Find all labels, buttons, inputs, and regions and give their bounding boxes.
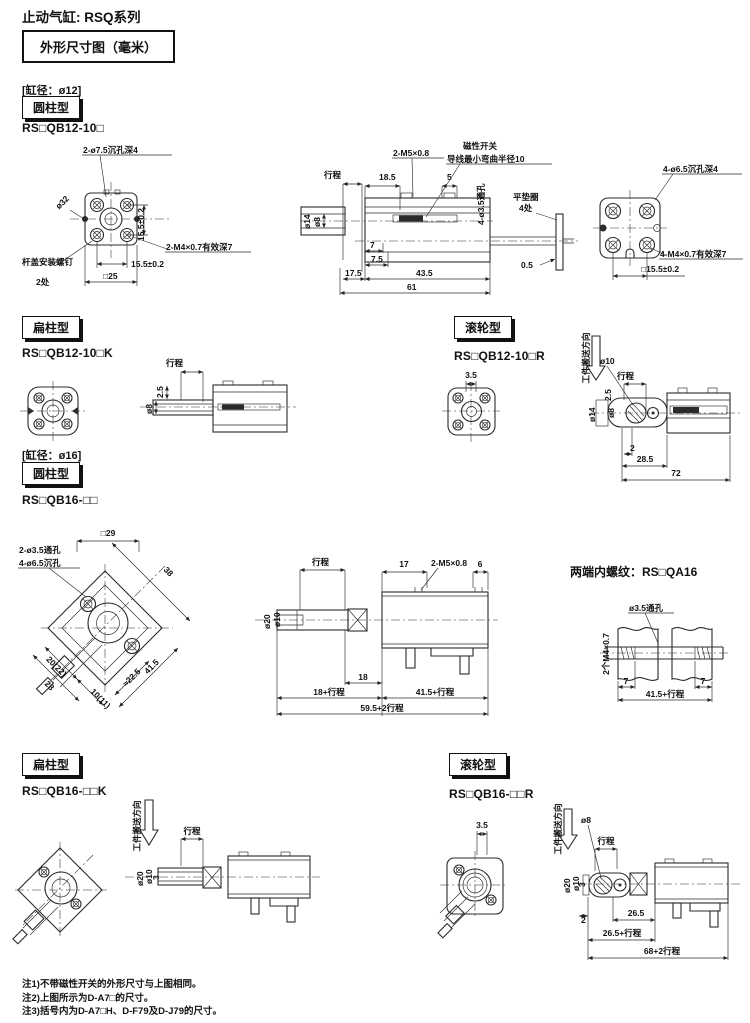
dim-label: 磁性开关 bbox=[463, 141, 498, 151]
dim-label: 2 bbox=[581, 915, 586, 925]
drawing-b12-side-view: 行程 18.5 5 2-M5×0.8 磁性开关 导线最小弯曲半径10 ø14 ø… bbox=[300, 141, 578, 295]
dim-label: 68+2行程 bbox=[644, 946, 681, 956]
workpiece-direction-arrow bbox=[140, 800, 158, 845]
workpiece-direction-label: 工件搬送方向 bbox=[553, 803, 563, 854]
workpiece-direction-label: 工件搬送方向 bbox=[581, 332, 591, 383]
dim-label: ø10 bbox=[600, 356, 615, 366]
dim-label: 2-M4×0.7有效深7 bbox=[166, 242, 233, 252]
dim-label: 行程 bbox=[165, 358, 184, 368]
dim-label: 2.5 bbox=[603, 389, 613, 401]
dim-label: 2-M5×0.8 bbox=[393, 148, 429, 158]
dim-label: 41.5 bbox=[142, 657, 161, 676]
dim-label: 3.5 bbox=[476, 820, 488, 830]
drawing-b16-roller: 3.5 工件搬送方向 ø8 行程 ø20 ø10 3 bbox=[438, 803, 740, 960]
dim-label: 6 bbox=[478, 559, 483, 569]
drawing-b12-end-view: 4-ø6.5沉孔深4 4-M4×0.7有效深7 □15.5±0.2 bbox=[593, 164, 743, 280]
dim-label: □29 bbox=[101, 528, 116, 538]
dim-label: 61 bbox=[407, 282, 417, 292]
dim-label: 17.5 bbox=[345, 268, 362, 278]
dim-label: ø8 bbox=[581, 815, 591, 825]
dim-label: 18.5 bbox=[379, 172, 396, 182]
dim-label: 15.5±0.2 bbox=[131, 259, 164, 269]
dim-label: 行程 bbox=[616, 371, 635, 381]
dim-label: ø20 bbox=[262, 614, 272, 629]
dim-label: 导线最小弯曲半径10 bbox=[447, 154, 525, 164]
dim-label: ø3.5通孔 bbox=[629, 603, 664, 613]
dim-label: 2个M4×0.7 bbox=[601, 633, 611, 675]
dim-label: 7 bbox=[624, 676, 629, 686]
dim-label: 20(22) bbox=[44, 654, 69, 679]
dim-label: 72 bbox=[671, 468, 681, 478]
dim-label: 18 bbox=[358, 672, 368, 682]
dim-label: 3 bbox=[151, 875, 161, 880]
dim-label: 2-ø3.5通孔 bbox=[19, 545, 61, 555]
drawing-b12-roller: 3.5 工件搬送方向 ø10 行程 2.5 ø14 ø8 bbox=[442, 332, 740, 482]
dim-label: 4-M4×0.7有效深7 bbox=[660, 249, 727, 259]
dim-label: ø8 bbox=[312, 217, 322, 227]
dim-label: 4-ø3.5通孔 bbox=[476, 183, 486, 225]
drawing-b12-flat: 行程 2.5 ø8 bbox=[20, 358, 296, 443]
dim-label: 15.5±0.2 bbox=[136, 208, 146, 241]
dim-label: 28.5 bbox=[637, 454, 654, 464]
technical-drawings: 2-ø7.5沉孔深4 ø32 15.5±0.2 2-M4×0.7有效深7 15.… bbox=[0, 0, 750, 1023]
catalog-page: 止动气缸: RSQ系列 外形尺寸图（毫米） [缸径：ø12] 圆柱型 RS□QB… bbox=[0, 0, 750, 1023]
dim-label: 41.5+行程 bbox=[416, 687, 455, 697]
workpiece-direction-label: 工件搬送方向 bbox=[132, 800, 142, 851]
drawing-b16-thread: ø3.5通孔 2个M4×0.7 7 7 41.5+行程 bbox=[600, 603, 730, 702]
drawing-b12-front-view: 2-ø7.5沉孔深4 ø32 15.5±0.2 2-M4×0.7有效深7 15.… bbox=[22, 145, 251, 287]
dim-label: 18+行程 bbox=[313, 687, 345, 697]
dim-label: 行程 bbox=[311, 557, 330, 567]
dim-label: 10(11) bbox=[88, 686, 112, 710]
dim-label: 41.5+行程 bbox=[646, 689, 685, 699]
dim-label: 2-ø7.5沉孔深4 bbox=[83, 145, 138, 155]
dim-label: 杆盖安装螺钉 bbox=[22, 257, 74, 267]
dim-label: 4处 bbox=[519, 203, 533, 213]
dim-label: 0.5 bbox=[521, 260, 533, 270]
dim-label: ø14 bbox=[587, 407, 597, 422]
dim-label: 17 bbox=[399, 559, 409, 569]
dim-label: 行程 bbox=[596, 836, 615, 846]
dim-label: 26.5 bbox=[628, 908, 645, 918]
drawing-b16-flat: 工件搬送方向 行程 ø20 ø10 3 bbox=[13, 800, 320, 944]
dim-label: 2处 bbox=[36, 277, 50, 287]
drawing-b16-front-view: □29 38 2-ø3.5通孔 4-ø6.5沉孔 20(22) 28 10(11… bbox=[18, 528, 190, 711]
dim-label: 38 bbox=[162, 565, 176, 579]
dim-label: □25 bbox=[103, 271, 118, 281]
dim-label: ø14 bbox=[302, 214, 312, 229]
dim-label: 行程 bbox=[323, 170, 342, 180]
dim-label: 7 bbox=[370, 240, 375, 250]
dim-label: 2 bbox=[630, 443, 635, 453]
dim-label: 4-ø6.5沉孔深4 bbox=[663, 164, 718, 174]
dim-label: 2.5 bbox=[155, 386, 165, 398]
dim-label: 平垫圈 bbox=[513, 192, 539, 202]
dim-label: 3.5 bbox=[465, 370, 477, 380]
dim-label: 7.5 bbox=[371, 254, 383, 264]
dim-label: ≈22.5 bbox=[120, 666, 142, 688]
dim-label: 26.5+行程 bbox=[603, 928, 642, 938]
drawing-b16-side-view: 行程 17 2-M5×0.8 6 ø20 ø10 18 bbox=[255, 557, 498, 716]
dim-label: 43.5 bbox=[416, 268, 433, 278]
dim-label: 3 bbox=[577, 882, 587, 887]
dim-label: 行程 bbox=[182, 826, 201, 836]
dim-label: 7 bbox=[701, 676, 706, 686]
dim-label: ø10 bbox=[272, 612, 282, 627]
dim-label: 4-ø6.5沉孔 bbox=[19, 558, 61, 568]
dim-label: ø32 bbox=[54, 193, 72, 211]
dim-label: 2-M5×0.8 bbox=[431, 558, 467, 568]
